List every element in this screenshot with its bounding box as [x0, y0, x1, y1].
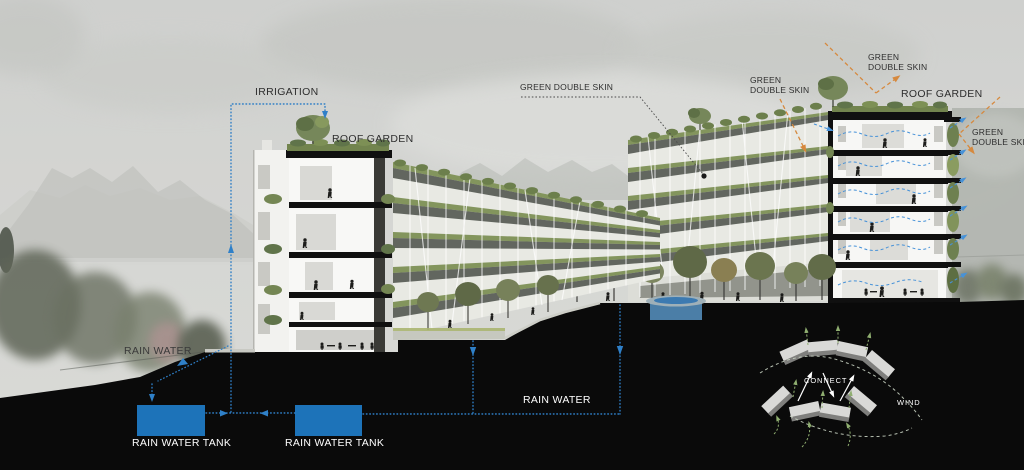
roof-garden-label-left: ROOF GARDEN [332, 134, 413, 146]
mountain-mist [0, 140, 270, 265]
irrigation-label: IRRIGATION [255, 87, 318, 99]
right-section-building [814, 76, 965, 303]
double-skin-word: DOUBLE SKIN [868, 63, 927, 73]
architectural-section-diagram: IRRIGATION ROOF GARDEN GREEN DOUBLE SKIN… [0, 0, 1024, 470]
rain-water-tank-2 [295, 405, 362, 436]
double-skin-word: DOUBLE SKIN [750, 86, 809, 96]
left-section-building [253, 115, 395, 358]
connect-label: CONNECT [804, 377, 847, 385]
wind-label: WIND [897, 399, 921, 407]
green-double-skin-label-3: GREEN DOUBLE SKIN [868, 53, 927, 72]
green-double-skin-label-4: GREEN DOUBLE SKIN [972, 128, 1024, 147]
rain-water-tank-label-2: RAIN WATER TANK [285, 438, 384, 450]
rain-water-label-left: RAIN WATER [124, 346, 192, 358]
green-double-skin-label-1: GREEN DOUBLE SKIN [520, 83, 613, 93]
pool [646, 296, 706, 321]
green-double-skin-label-2: GREEN DOUBLE SKIN [750, 76, 809, 95]
rain-water-label-center: RAIN WATER [523, 395, 591, 407]
roof-garden-label-right: ROOF GARDEN [901, 89, 982, 101]
double-skin-word: DOUBLE SKIN [972, 138, 1024, 148]
rain-water-tank-label-1: RAIN WATER TANK [132, 438, 231, 450]
rain-water-tank-1 [137, 405, 205, 436]
